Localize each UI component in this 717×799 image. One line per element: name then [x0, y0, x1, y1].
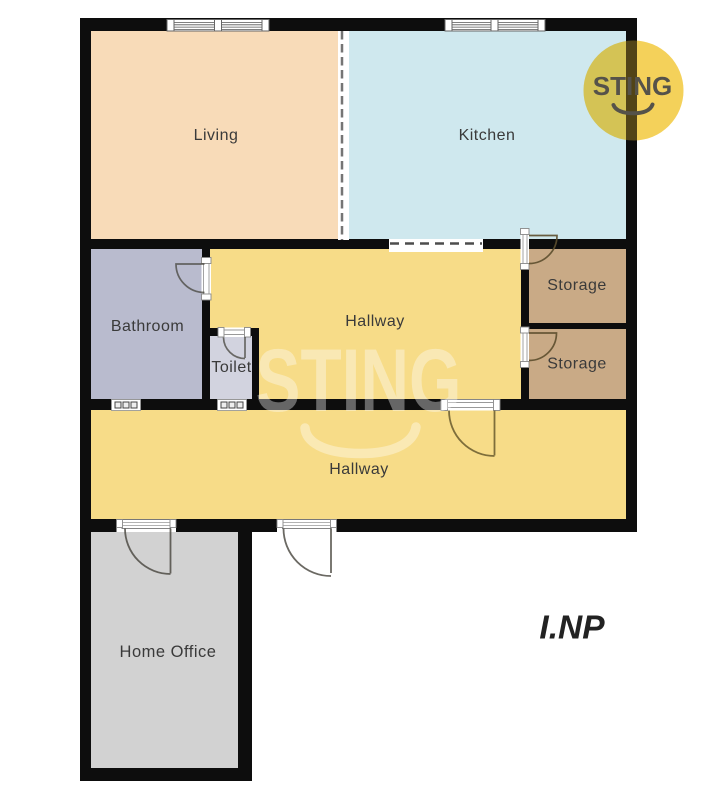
svg-text:Toilet: Toilet	[211, 359, 251, 376]
svg-text:I.NP: I.NP	[539, 610, 605, 647]
svg-text:Living: Living	[194, 127, 239, 144]
svg-text:Home Office: Home Office	[120, 643, 217, 661]
svg-text:Storage: Storage	[547, 277, 607, 294]
svg-text:Storage: Storage	[547, 356, 607, 373]
svg-text:STING: STING	[256, 330, 462, 430]
svg-text:Kitchen: Kitchen	[459, 127, 516, 144]
svg-text:Hallway: Hallway	[329, 461, 389, 478]
svg-text:Hallway: Hallway	[345, 313, 405, 330]
svg-text:STING: STING	[593, 71, 672, 101]
svg-text:Bathroom: Bathroom	[111, 318, 184, 335]
